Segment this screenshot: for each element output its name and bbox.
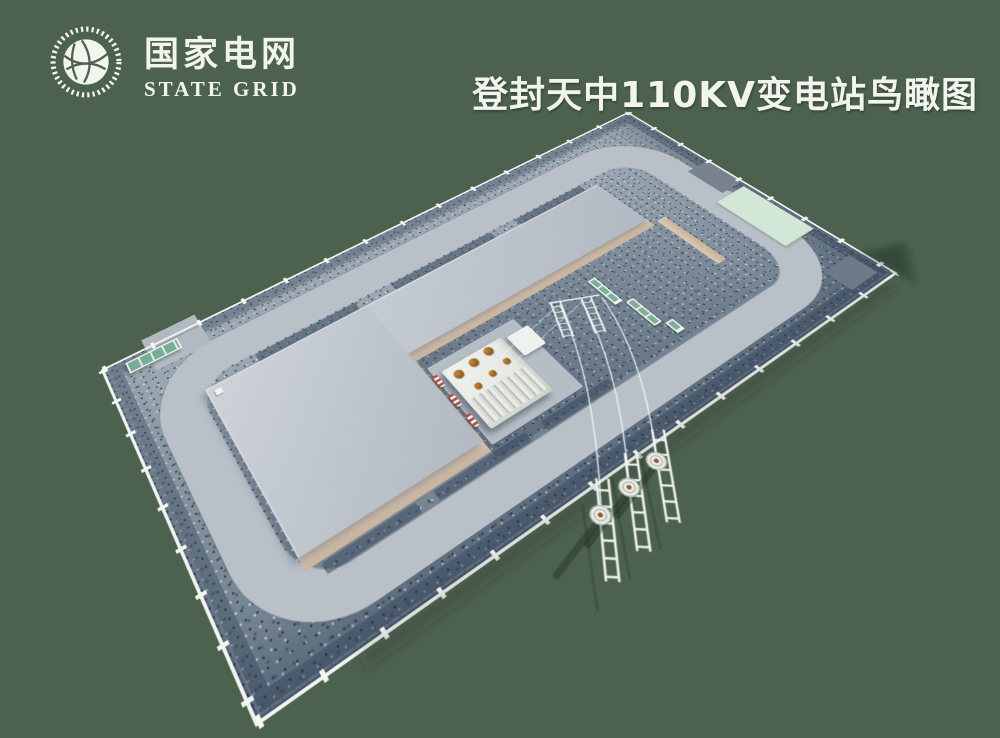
logo-name-cn: 国家电网	[144, 38, 300, 73]
state-grid-emblem-icon	[50, 26, 122, 98]
poster: 国家电网 STATE GRID 登封天中110KV变电站鸟瞰图	[0, 0, 1000, 738]
state-grid-logo: 国家电网 STATE GRID	[50, 26, 300, 102]
header: 国家电网 STATE GRID 登封天中110KV变电站鸟瞰图	[0, 0, 1000, 115]
substation-site	[103, 113, 895, 723]
lines-overlay	[103, 113, 895, 723]
logo-text: 国家电网 STATE GRID	[144, 26, 300, 102]
page-title: 登封天中110KV变电站鸟瞰图	[472, 66, 978, 118]
logo-name-en: STATE GRID	[144, 77, 300, 102]
